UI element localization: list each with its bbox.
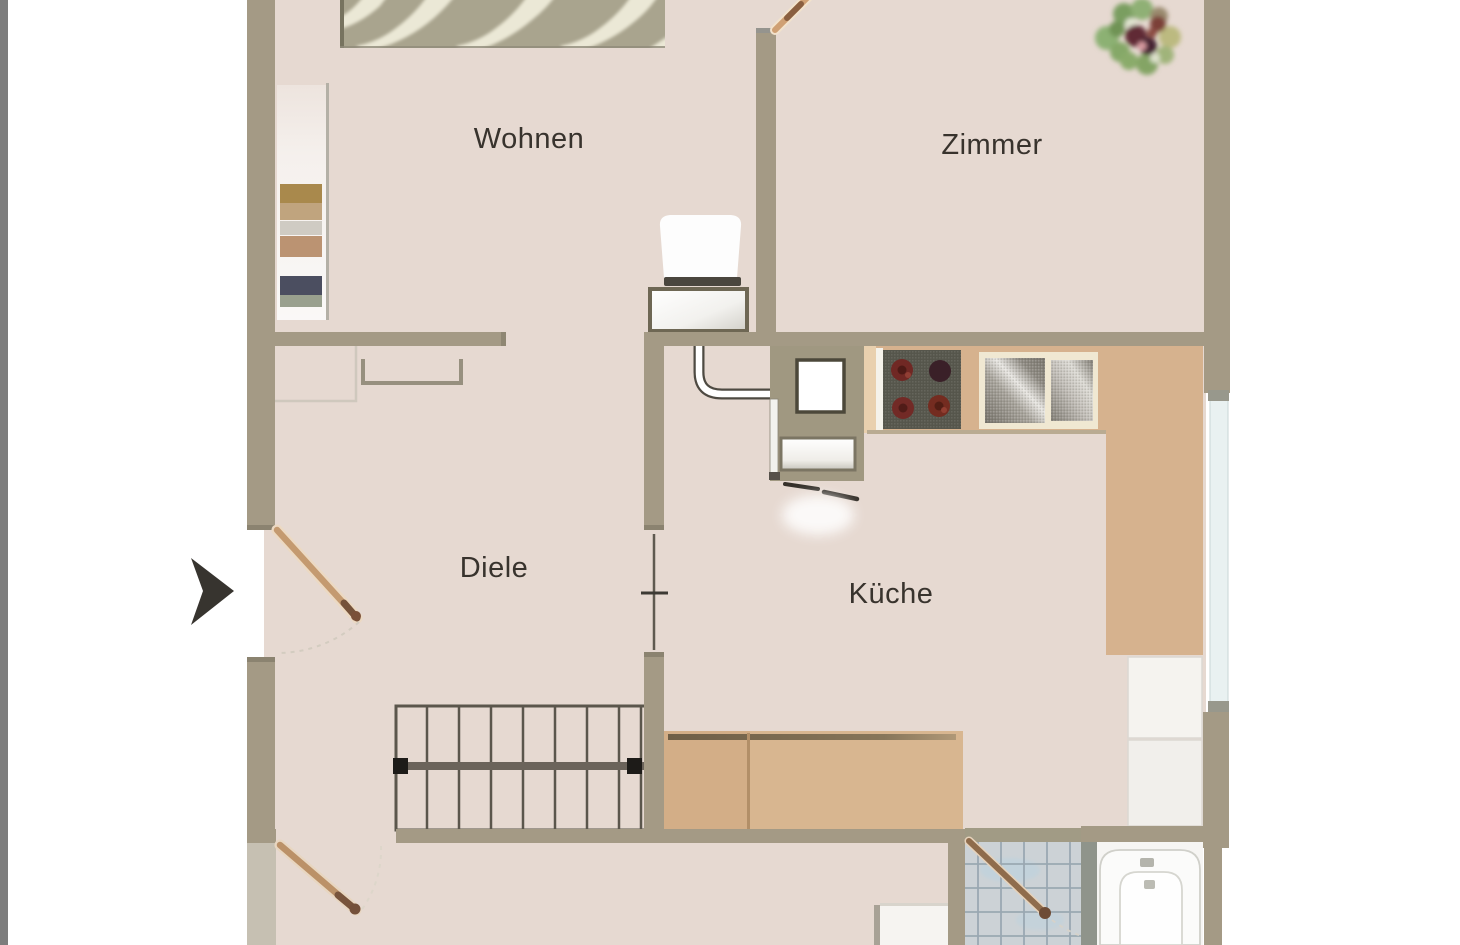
svg-text:Küche: Küche <box>849 578 934 610</box>
svg-text:Diele: Diele <box>460 552 529 584</box>
svg-text:Wohnen: Wohnen <box>474 123 585 155</box>
svg-text:Zimmer: Zimmer <box>941 129 1042 161</box>
